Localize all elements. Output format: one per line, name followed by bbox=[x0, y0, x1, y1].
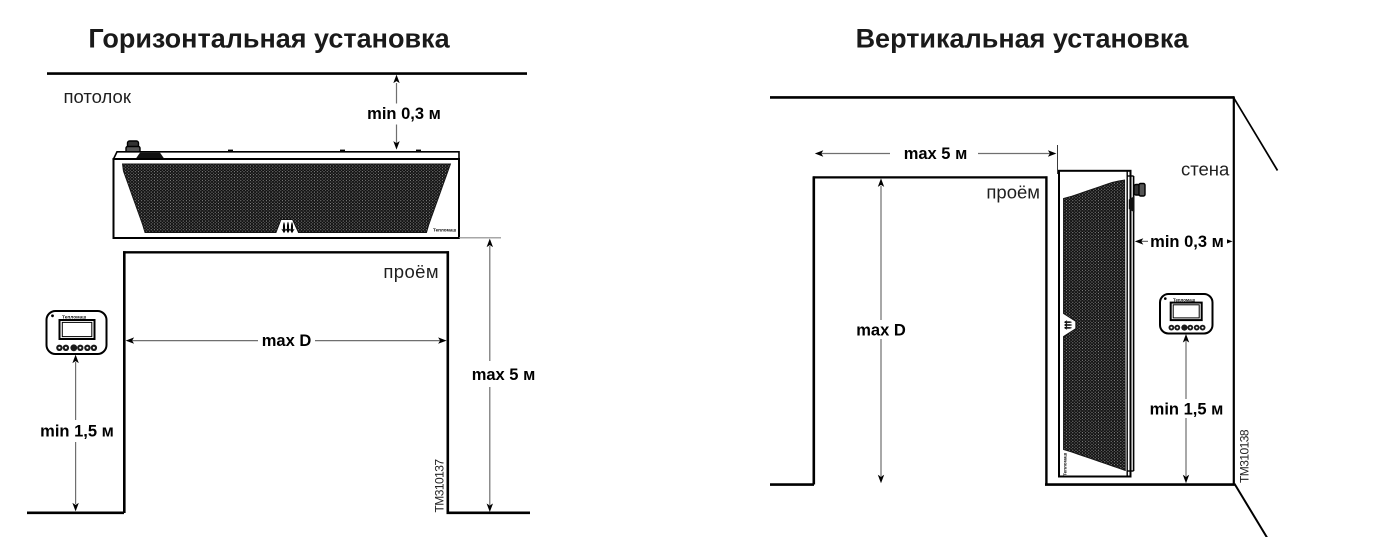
svg-text:min 1,5 м: min 1,5 м bbox=[40, 423, 114, 441]
svg-text:min 1,5 м: min 1,5 м bbox=[1150, 401, 1224, 419]
svg-text:проём: проём bbox=[986, 181, 1040, 202]
svg-text:TM310137: TM310137 bbox=[433, 459, 447, 513]
svg-text:стена: стена bbox=[1181, 159, 1230, 180]
svg-text:Тепломаш: Тепломаш bbox=[433, 228, 456, 233]
svg-text:min 0,3 м: min 0,3 м bbox=[1150, 233, 1224, 251]
svg-text:min 0,3 м: min 0,3 м bbox=[367, 105, 441, 123]
svg-text:Горизонтальная установка: Горизонтальная установка bbox=[88, 24, 450, 54]
svg-text:потолок: потолок bbox=[64, 86, 132, 107]
svg-text:max 5 м: max 5 м bbox=[472, 366, 536, 384]
svg-text:max D: max D bbox=[262, 332, 312, 350]
svg-text:max 5 м: max 5 м bbox=[904, 145, 968, 163]
svg-text:проём: проём bbox=[383, 261, 439, 282]
svg-text:Тепломаш: Тепломаш bbox=[1063, 453, 1068, 476]
svg-text:max D: max D bbox=[856, 322, 906, 340]
svg-text:TM310138: TM310138 bbox=[1238, 429, 1252, 483]
svg-text:Вертикальная установка: Вертикальная установка bbox=[856, 24, 1190, 54]
